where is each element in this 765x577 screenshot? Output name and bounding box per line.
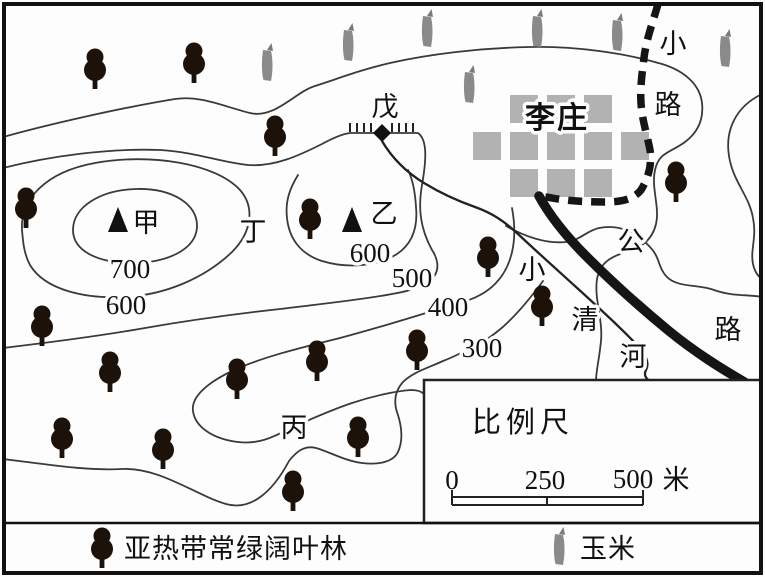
topographic-map: 甲 乙 丁 戊 丙 李庄 700 600 600 500 400 300 小 路… bbox=[0, 0, 765, 577]
village-block bbox=[510, 132, 538, 160]
tree-symbol bbox=[99, 352, 121, 393]
corn-symbol bbox=[532, 9, 543, 47]
contour-line-east-edge bbox=[728, 94, 762, 279]
corn-symbol bbox=[464, 65, 475, 103]
village-block bbox=[547, 169, 575, 197]
scale-unit: 米 bbox=[663, 465, 690, 495]
legend-corn-icon bbox=[554, 527, 565, 565]
peak-yi-triangle bbox=[342, 207, 362, 232]
peak-jia-label: 甲 bbox=[133, 208, 160, 238]
tree-symbol bbox=[84, 49, 106, 90]
tree-symbol bbox=[226, 359, 248, 400]
contour-label-600-yi: 600 bbox=[350, 238, 391, 268]
highway-label-char1: 公 bbox=[618, 227, 645, 257]
tree-symbol bbox=[406, 330, 428, 371]
dam-diamond bbox=[373, 124, 391, 142]
corn-symbol bbox=[262, 43, 273, 81]
contour-label-400: 400 bbox=[428, 292, 469, 322]
tree-symbol bbox=[152, 429, 174, 470]
corn-symbol bbox=[343, 23, 354, 61]
legend-corn-label: 玉米 bbox=[580, 534, 636, 564]
spot-wu-label: 戊 bbox=[372, 92, 399, 122]
spot-bing-label: 丙 bbox=[281, 413, 308, 443]
tree-symbol bbox=[15, 188, 37, 229]
contour-label-500: 500 bbox=[392, 263, 433, 293]
scale-title: 比例尺 bbox=[472, 406, 574, 439]
tree-symbol bbox=[51, 418, 73, 459]
contour-label-700: 700 bbox=[110, 254, 151, 284]
tree-symbol bbox=[183, 43, 205, 84]
tree-symbol bbox=[264, 116, 286, 157]
tree-symbol bbox=[306, 341, 328, 382]
tree-symbol bbox=[299, 199, 321, 240]
corn-symbol bbox=[422, 9, 433, 47]
village-block bbox=[584, 169, 612, 197]
tree-symbol bbox=[477, 237, 499, 278]
scale-box: 比例尺 0 250 500 米 bbox=[424, 380, 761, 523]
trail-label-char2: 路 bbox=[655, 90, 682, 120]
village-block bbox=[621, 132, 649, 160]
trail-label-char1: 小 bbox=[660, 29, 687, 59]
village-block bbox=[584, 132, 612, 160]
legend-forest-label: 亚热带常绿阔叶林 bbox=[124, 534, 348, 564]
peak-jia-triangle bbox=[108, 207, 128, 232]
tree-symbol bbox=[282, 471, 304, 512]
contour-label-300: 300 bbox=[462, 333, 503, 363]
tree-symbol bbox=[347, 417, 369, 458]
corn-symbol bbox=[720, 29, 731, 67]
scale-tick-250: 250 bbox=[525, 465, 566, 495]
tree-symbol bbox=[665, 162, 687, 203]
river-label-char2: 清 bbox=[572, 305, 599, 335]
tree-symbol bbox=[31, 306, 53, 347]
spot-ding-label: 丁 bbox=[240, 217, 267, 247]
river-label-char1: 小 bbox=[519, 255, 546, 285]
river-label-char3: 河 bbox=[620, 342, 647, 372]
tree-symbol bbox=[531, 286, 553, 327]
village-label: 李庄 bbox=[525, 101, 589, 135]
highway-label-char2: 路 bbox=[715, 315, 742, 345]
village-block bbox=[547, 132, 575, 160]
village-block bbox=[510, 169, 538, 197]
contour-label-600-jia: 600 bbox=[106, 290, 147, 320]
legend-tree-icon bbox=[91, 528, 113, 569]
peak-yi-label: 乙 bbox=[371, 199, 398, 229]
corn-symbol bbox=[612, 13, 623, 51]
village-block bbox=[473, 132, 501, 160]
scale-tick-500: 500 bbox=[613, 464, 654, 494]
legend-bar: 亚热带常绿阔叶林 玉米 bbox=[4, 523, 761, 568]
